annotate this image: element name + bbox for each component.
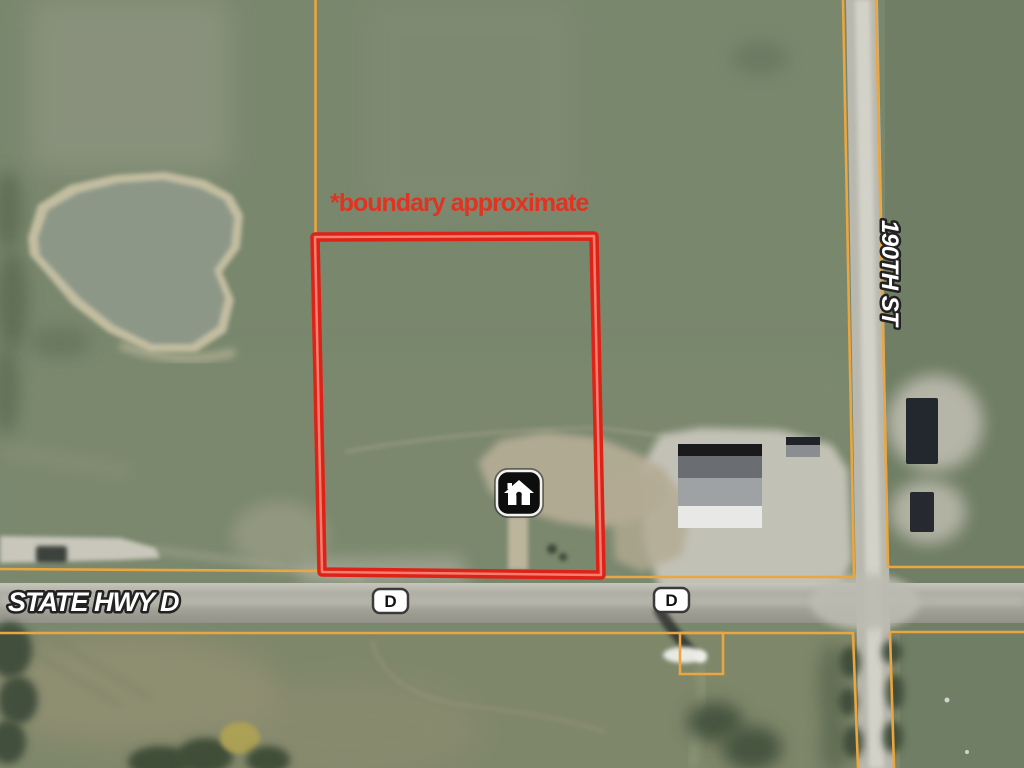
east-building-large — [906, 398, 938, 464]
street-label: 190TH ST — [876, 220, 903, 328]
route-shield-d-east: D — [654, 588, 689, 612]
satellite-imagery: *boundary approximate STATE HWY D 190TH … — [0, 0, 1024, 768]
highway-label: STATE HWY D — [8, 587, 179, 617]
home-marker — [495, 469, 543, 517]
aerial-map[interactable]: *boundary approximate STATE HWY D 190TH … — [0, 0, 1024, 768]
boundary-note: *boundary approximate — [330, 189, 589, 217]
east-building-small — [910, 492, 934, 532]
barn-building — [678, 444, 762, 528]
route-shield-d-west: D — [373, 589, 408, 613]
shed-building — [786, 437, 820, 457]
parked-vehicle — [36, 546, 67, 563]
route-shield-letter: D — [665, 591, 677, 610]
route-shield-letter: D — [384, 592, 396, 611]
